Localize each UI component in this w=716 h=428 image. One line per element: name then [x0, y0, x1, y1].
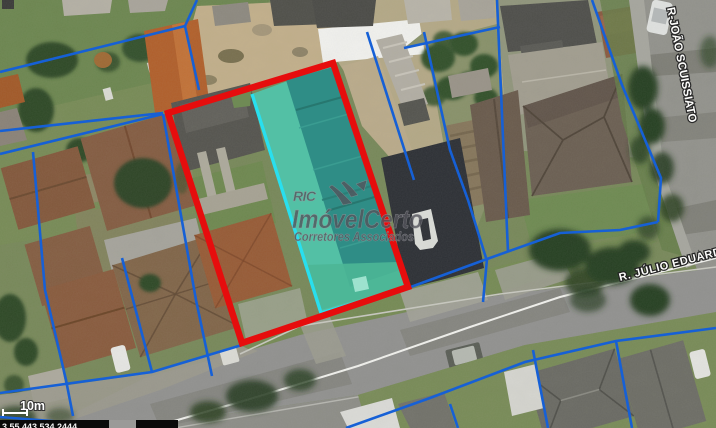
svg-text:Corretores Associados: Corretores Associados — [294, 229, 414, 244]
svg-text:RIC: RIC — [293, 188, 317, 204]
svg-text:3 55 443 534 2444: 3 55 443 534 2444 — [2, 422, 77, 428]
svg-text:10m: 10m — [20, 399, 45, 413]
